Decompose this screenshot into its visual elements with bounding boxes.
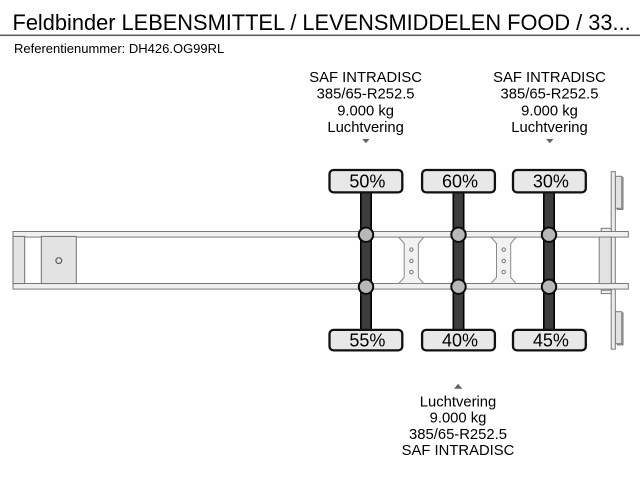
svg-text:385/65-R252.5: 385/65-R252.5 — [501, 87, 599, 103]
svg-text:385/65-R252.5: 385/65-R252.5 — [409, 427, 507, 443]
svg-text:385/65-R252.5: 385/65-R252.5 — [317, 87, 415, 103]
svg-text:55%: 55% — [349, 330, 385, 350]
svg-text:9.000 kg: 9.000 kg — [337, 103, 394, 119]
svg-text:9.000 kg: 9.000 kg — [521, 103, 578, 119]
svg-text:SAF INTRADISC: SAF INTRADISC — [402, 443, 515, 459]
svg-text:Feldbinder LEBENSMITTEL / LEVE: Feldbinder LEBENSMITTEL / LEVENSMIDDELEN… — [13, 10, 631, 35]
svg-text:50%: 50% — [349, 172, 385, 192]
svg-text:SAF INTRADISC: SAF INTRADISC — [309, 70, 422, 86]
svg-text:40%: 40% — [442, 330, 478, 350]
svg-text:9.000 kg: 9.000 kg — [430, 411, 487, 427]
svg-text:60%: 60% — [442, 172, 478, 192]
svg-text:Referentienummer: DH426.OG99RL: Referentienummer: DH426.OG99RL — [14, 41, 224, 56]
svg-text:Luchtvering: Luchtvering — [327, 120, 404, 136]
svg-text:45%: 45% — [533, 330, 569, 350]
svg-text:Luchtvering: Luchtvering — [420, 394, 497, 410]
svg-text:SAF INTRADISC: SAF INTRADISC — [493, 70, 606, 86]
svg-text:Luchtvering: Luchtvering — [511, 120, 588, 136]
svg-text:30%: 30% — [533, 172, 569, 192]
